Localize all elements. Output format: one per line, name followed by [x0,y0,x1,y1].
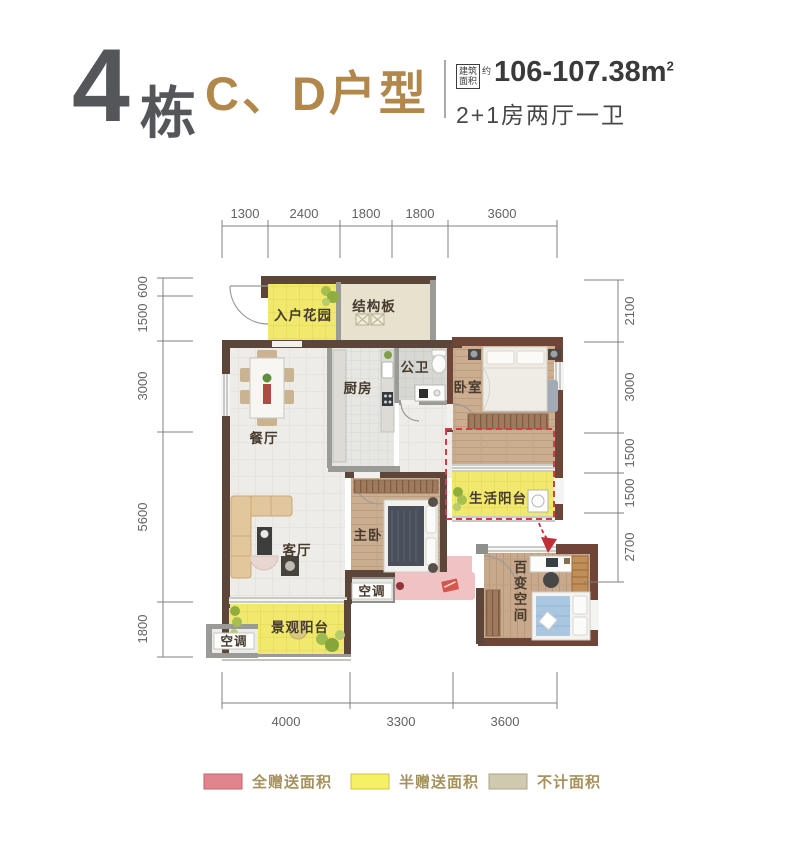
wall [222,340,462,348]
dim-label: 5600 [135,503,150,532]
dim-label: 3300 [387,714,416,729]
dim-label: 3600 [491,714,520,729]
floor-plan-svg: 入户花园 结构板 公卫 厨房 卧室 餐厅 生活阳台 主卧 客厅 空调 百变空间 … [0,0,800,864]
label-dining: 餐厅 [249,430,279,446]
label-public-bath: 公卫 [401,360,430,375]
legend-label-half-gift: 半赠送面积 [399,773,479,791]
wall [476,544,488,554]
label-master-bedroom: 主卧 [354,527,383,543]
dim-label: 1800 [135,615,150,644]
gift-pink-zone [393,572,475,600]
door-gap [272,341,302,347]
label-ac2: 空调 [220,634,247,649]
dim-label: 1500 [622,439,637,468]
wall [206,653,258,658]
wall [430,280,436,344]
wall [440,472,447,572]
dim-label: 1300 [231,206,260,221]
legend-swatch-excluded [489,774,527,789]
legend-swatch-half-gift [351,774,389,789]
wall [555,432,563,520]
bedroom-ext-floor [452,432,555,466]
legend: 全赠送面积 半赠送面积 不计面积 [204,773,601,791]
dim-label: 1800 [352,206,381,221]
dim-label: 3600 [488,206,517,221]
wall [336,282,341,342]
label-ac1: 空调 [358,584,385,599]
dim-label: 600 [135,276,150,298]
wall [344,600,351,656]
label-bedroom: 卧室 [454,379,483,395]
dim-label: 4000 [272,714,301,729]
wall [394,348,399,403]
dim-label: 2100 [622,297,637,326]
gift-arrow-line [539,523,547,539]
door-gap [354,472,380,478]
label-service-balcony: 生活阳台 [469,490,527,506]
wall [206,624,212,658]
legend-swatch-full-gift [204,774,242,789]
wall [261,276,436,284]
wall [590,544,598,646]
label-entry-garden: 入户花园 [274,307,332,323]
wall [206,624,258,629]
label-view-balcony: 景观阳台 [271,619,329,635]
corridor-floor [399,403,452,478]
legend-label-full-gift: 全赠送面积 [251,773,332,791]
railing [222,659,351,661]
wall [328,466,400,472]
label-structure-slab: 结构板 [352,298,396,314]
door-gap [447,404,453,430]
window [221,374,230,416]
bath-cabinet [415,385,445,401]
dim-label: 1500 [622,479,637,508]
dim-label: 1800 [406,206,435,221]
label-kitchen: 厨房 [344,380,373,396]
dim-label: 3000 [622,373,637,402]
wall [476,588,484,644]
dim-label: 3000 [135,372,150,401]
label-living: 客厅 [282,542,312,558]
wall [452,337,563,346]
dim-label: 2700 [622,533,637,562]
label-flex-space: 百变空间 [514,560,529,623]
dim-label: 1500 [135,304,150,333]
toilet [432,350,446,373]
wall [261,276,268,298]
dim-left-ticks [157,278,193,657]
window [554,478,564,504]
legend-label-excluded: 不计面积 [537,773,601,791]
dim-label: 2400 [290,206,319,221]
wall [327,348,332,468]
